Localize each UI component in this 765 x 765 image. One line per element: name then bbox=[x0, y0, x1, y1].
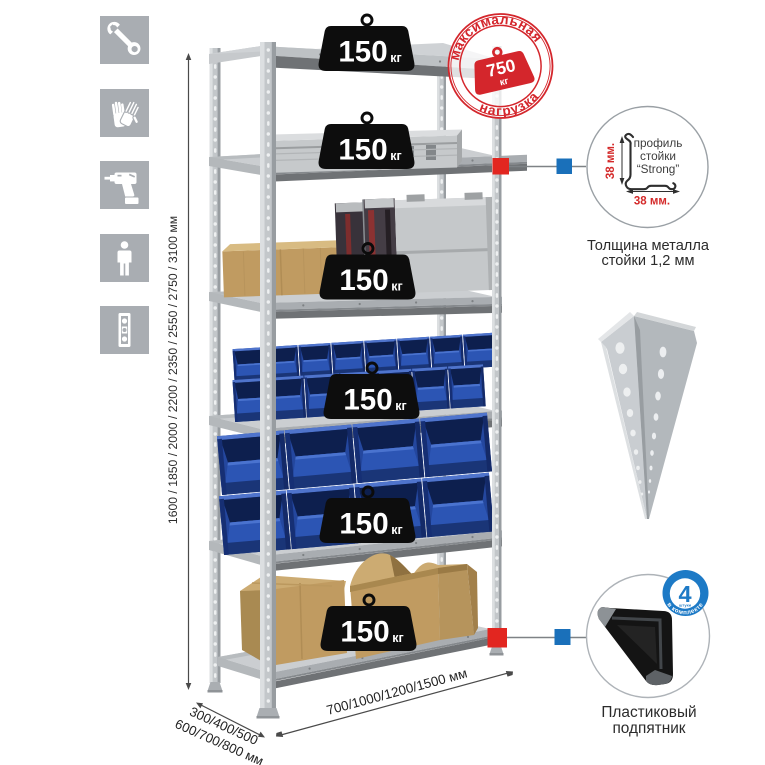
svg-text:38 мм.: 38 мм. bbox=[605, 143, 617, 179]
svg-text:150: 150 bbox=[338, 36, 387, 69]
svg-text:150: 150 bbox=[338, 134, 387, 167]
svg-text:кг: кг bbox=[395, 399, 406, 413]
svg-text:150: 150 bbox=[340, 616, 389, 649]
svg-text:штуки: штуки bbox=[679, 602, 692, 607]
svg-text:150: 150 bbox=[339, 264, 388, 297]
svg-text:“Strong”: “Strong” bbox=[637, 162, 680, 176]
svg-text:кг: кг bbox=[391, 523, 402, 537]
svg-text:150: 150 bbox=[343, 384, 392, 417]
svg-text:кг: кг bbox=[390, 51, 401, 65]
svg-text:стойки: стойки bbox=[640, 149, 676, 163]
svg-text:кг: кг bbox=[392, 631, 403, 645]
svg-text:кг: кг bbox=[390, 149, 401, 163]
svg-text:38 мм.: 38 мм. bbox=[634, 196, 670, 208]
svg-text:Толщина металла: Толщина металла bbox=[587, 238, 710, 254]
svg-text:профиль: профиль bbox=[634, 136, 683, 150]
svg-text:кг: кг bbox=[391, 280, 402, 294]
svg-text:стойки 1,2 мм: стойки 1,2 мм bbox=[601, 253, 694, 269]
svg-text:1600 / 1850 / 2000 / 2200 / 23: 1600 / 1850 / 2000 / 2200 / 2350 / 2550 … bbox=[166, 216, 180, 524]
svg-text:подпятник: подпятник bbox=[612, 720, 685, 737]
svg-text:150: 150 bbox=[339, 508, 388, 541]
svg-text:Пластиковый: Пластиковый bbox=[601, 704, 696, 721]
